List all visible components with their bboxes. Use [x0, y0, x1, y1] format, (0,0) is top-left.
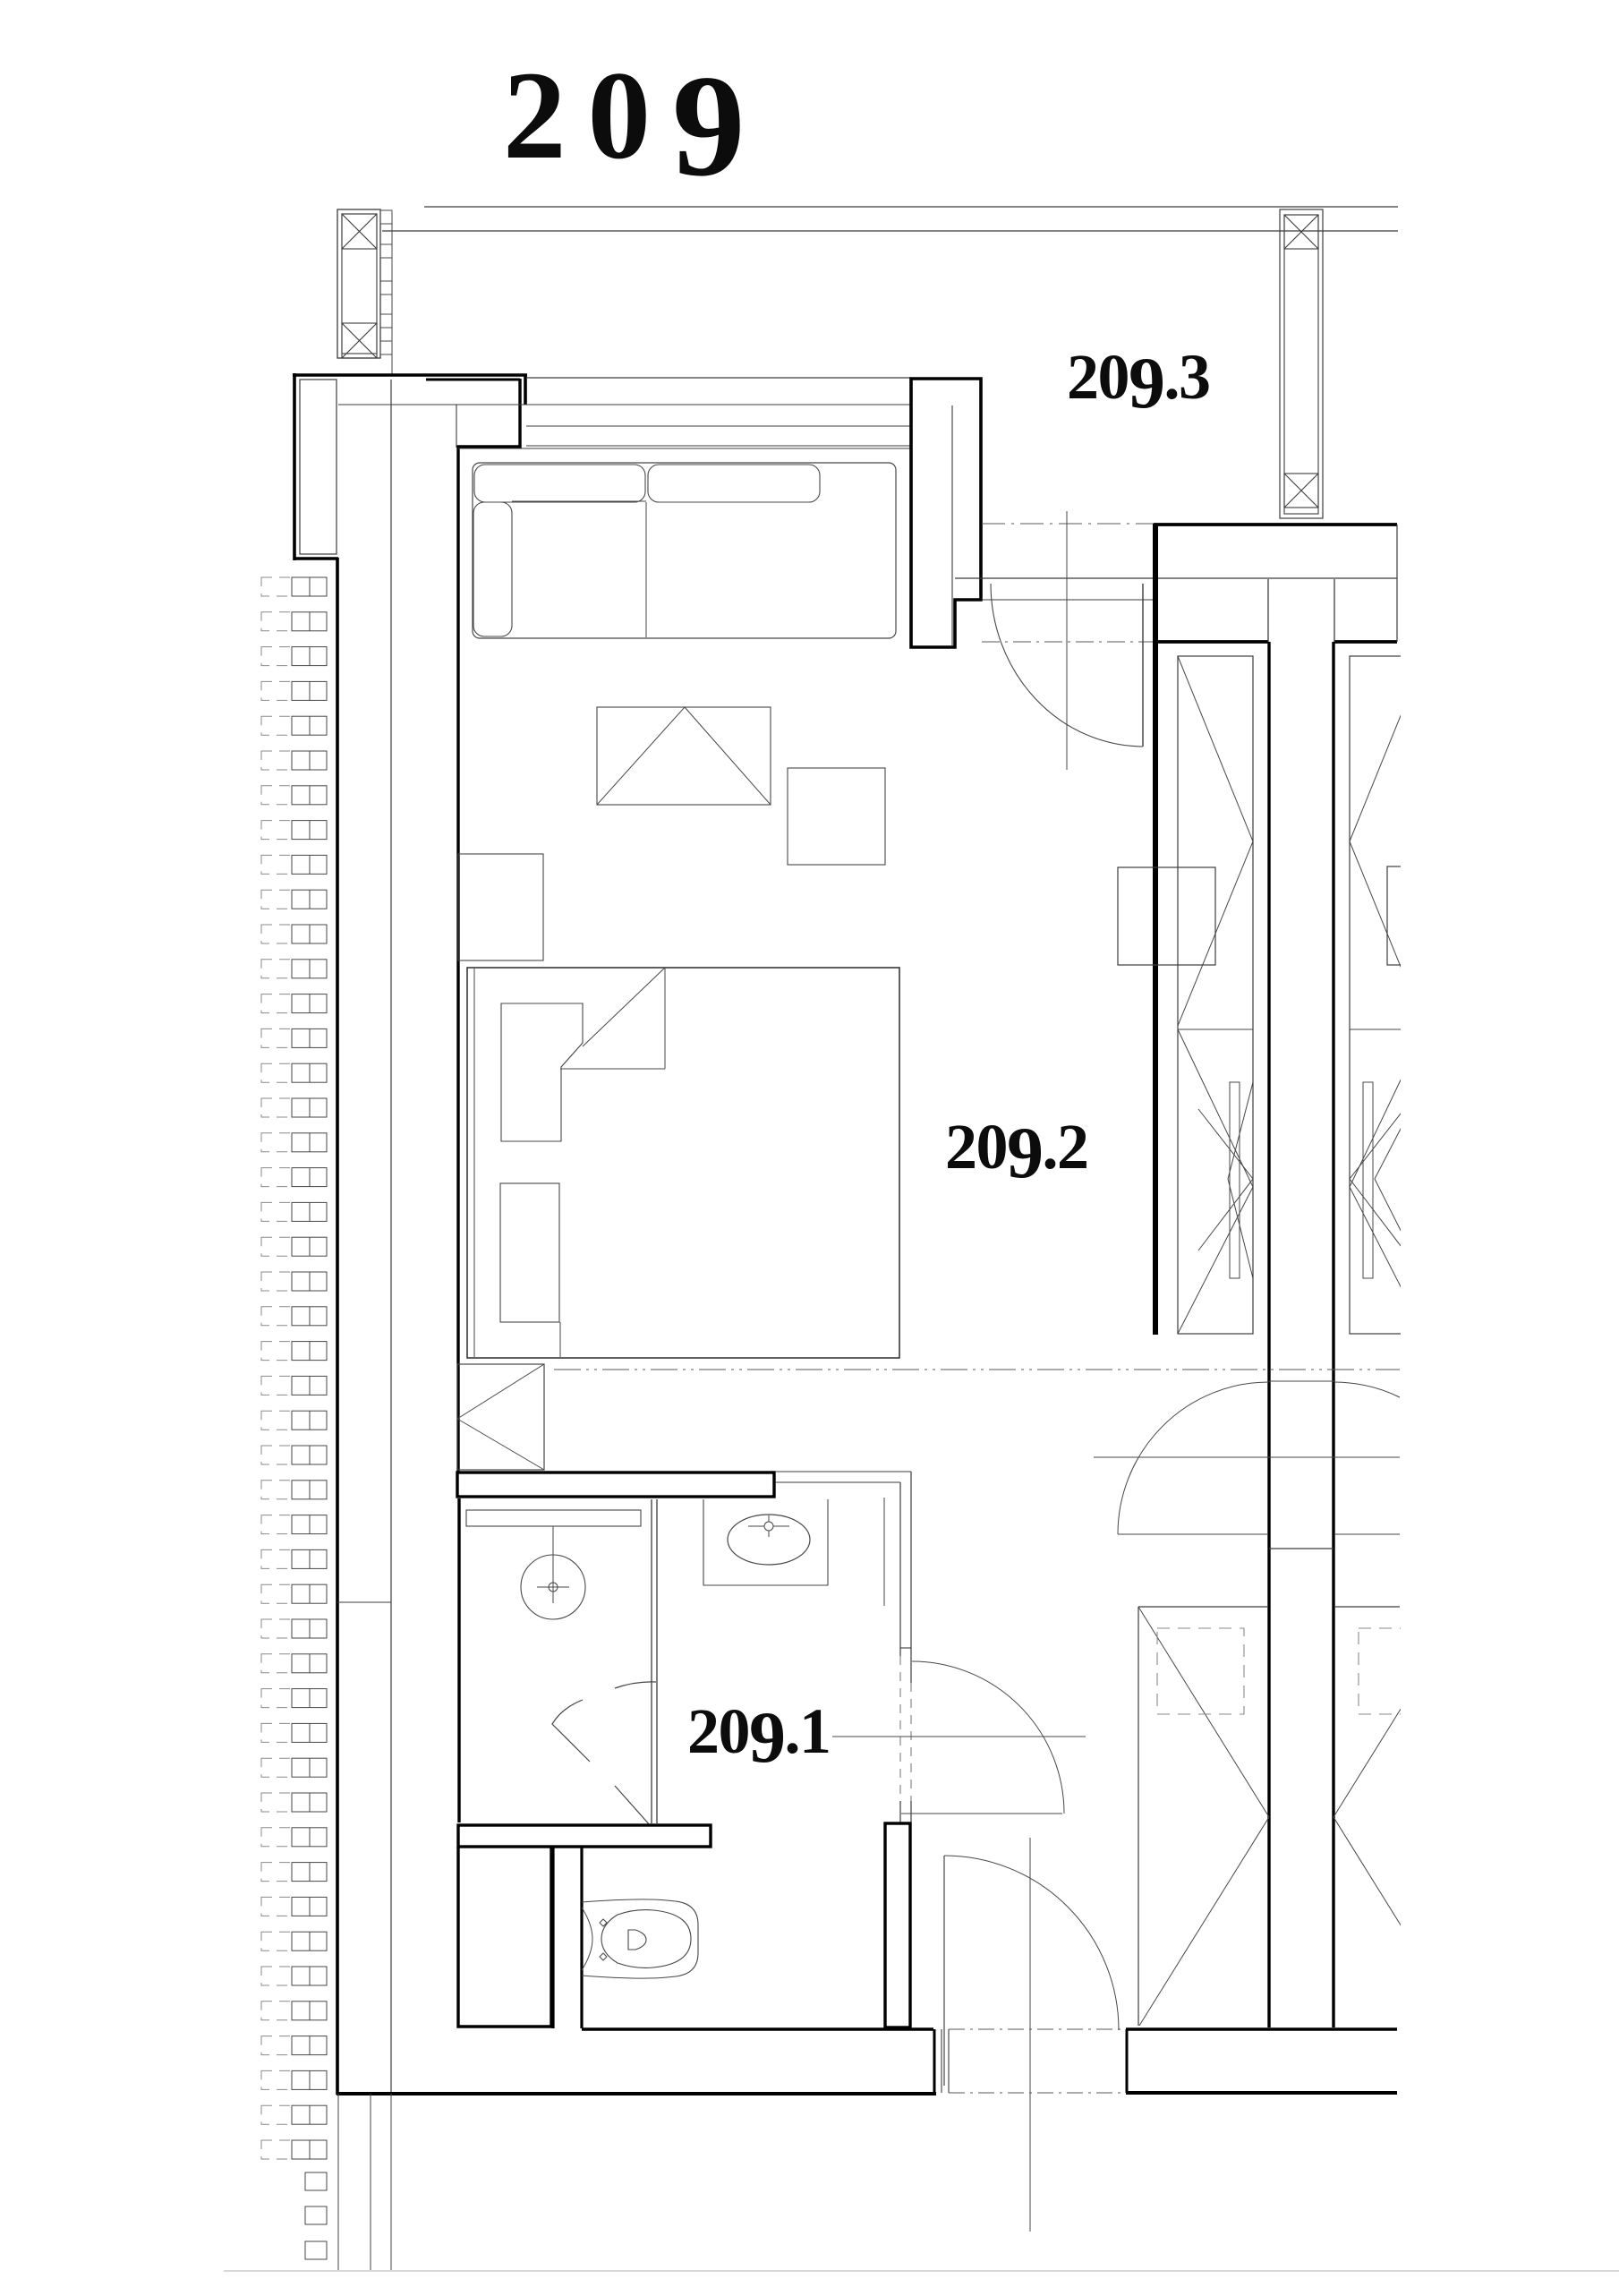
- svg-text:209.2: 209.2: [945, 1111, 1088, 1193]
- svg-text:209.1: 209.1: [687, 1695, 831, 1778]
- svg-text:209: 209: [503, 46, 767, 207]
- svg-text:209.3: 209.3: [1067, 341, 1210, 423]
